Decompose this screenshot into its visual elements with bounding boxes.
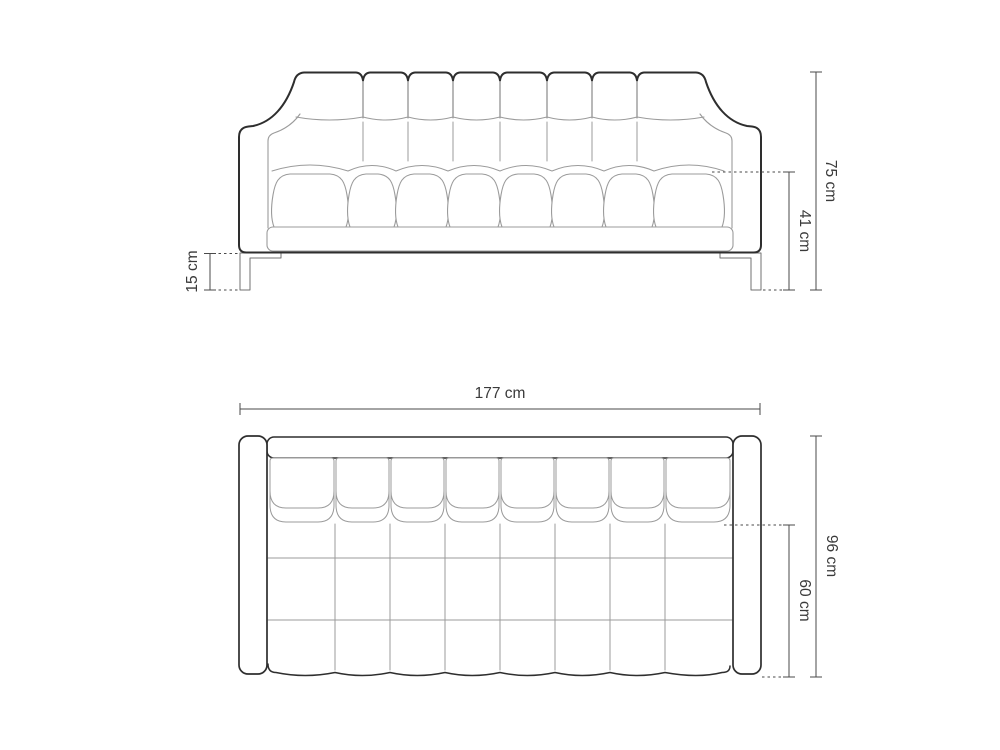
top-width-label: 177 cm: [475, 385, 526, 402]
top-front-edge: [268, 664, 730, 676]
top-back-cushion: [391, 458, 444, 508]
top-back-cushion: [446, 458, 499, 508]
seat-cushion: [448, 174, 501, 227]
front-leg-height-label: 15 cm: [184, 250, 201, 292]
seat-cushion: [654, 174, 725, 227]
top-seat-depth-label: 60 cm: [796, 579, 813, 621]
front-view: [239, 73, 761, 291]
front-seat-rear-arcs: [272, 165, 724, 171]
top-left-armrest: [239, 436, 267, 674]
front-seat-height-label: 41 cm: [796, 210, 813, 252]
seat-cushion: [272, 174, 349, 227]
seat-cushion: [396, 174, 449, 227]
top-back-cushions: [270, 458, 730, 508]
front-leg-height-dimension: [204, 254, 240, 291]
front-base-rail: [267, 227, 733, 251]
seat-cushion: [604, 174, 655, 227]
front-seat-cushions: [272, 174, 725, 227]
top-back-cushion: [666, 458, 730, 508]
top-view: [239, 436, 761, 676]
top-back-cushion: [611, 458, 664, 508]
front-back-cushion-dividers-middle: [363, 122, 637, 161]
top-seat-grid: [268, 524, 732, 670]
seat-cushion: [500, 174, 553, 227]
front-height-dimension: [810, 72, 822, 290]
front-right-leg: [720, 253, 761, 290]
top-back-cushion: [270, 458, 334, 508]
top-right-armrest: [733, 436, 761, 674]
top-depth-label: 96 cm: [823, 535, 840, 577]
front-left-leg: [240, 253, 281, 290]
top-back-cushion: [501, 458, 554, 508]
top-depth-dimension: [810, 436, 822, 677]
top-width-dimension: [240, 403, 760, 415]
sofa-dimensions-diagram: 75 cm 41 cm 15 cm: [0, 0, 1000, 750]
top-back-cushion: [556, 458, 609, 508]
front-height-label: 75 cm: [822, 160, 839, 202]
top-backrest-band: [267, 437, 733, 458]
seat-cushion: [348, 174, 397, 227]
top-back-cushion: [336, 458, 389, 508]
diagram-svg: 75 cm 41 cm 15 cm: [0, 0, 1000, 750]
front-back-cushion-dividers-top: [363, 82, 637, 118]
seat-cushion: [552, 174, 605, 227]
